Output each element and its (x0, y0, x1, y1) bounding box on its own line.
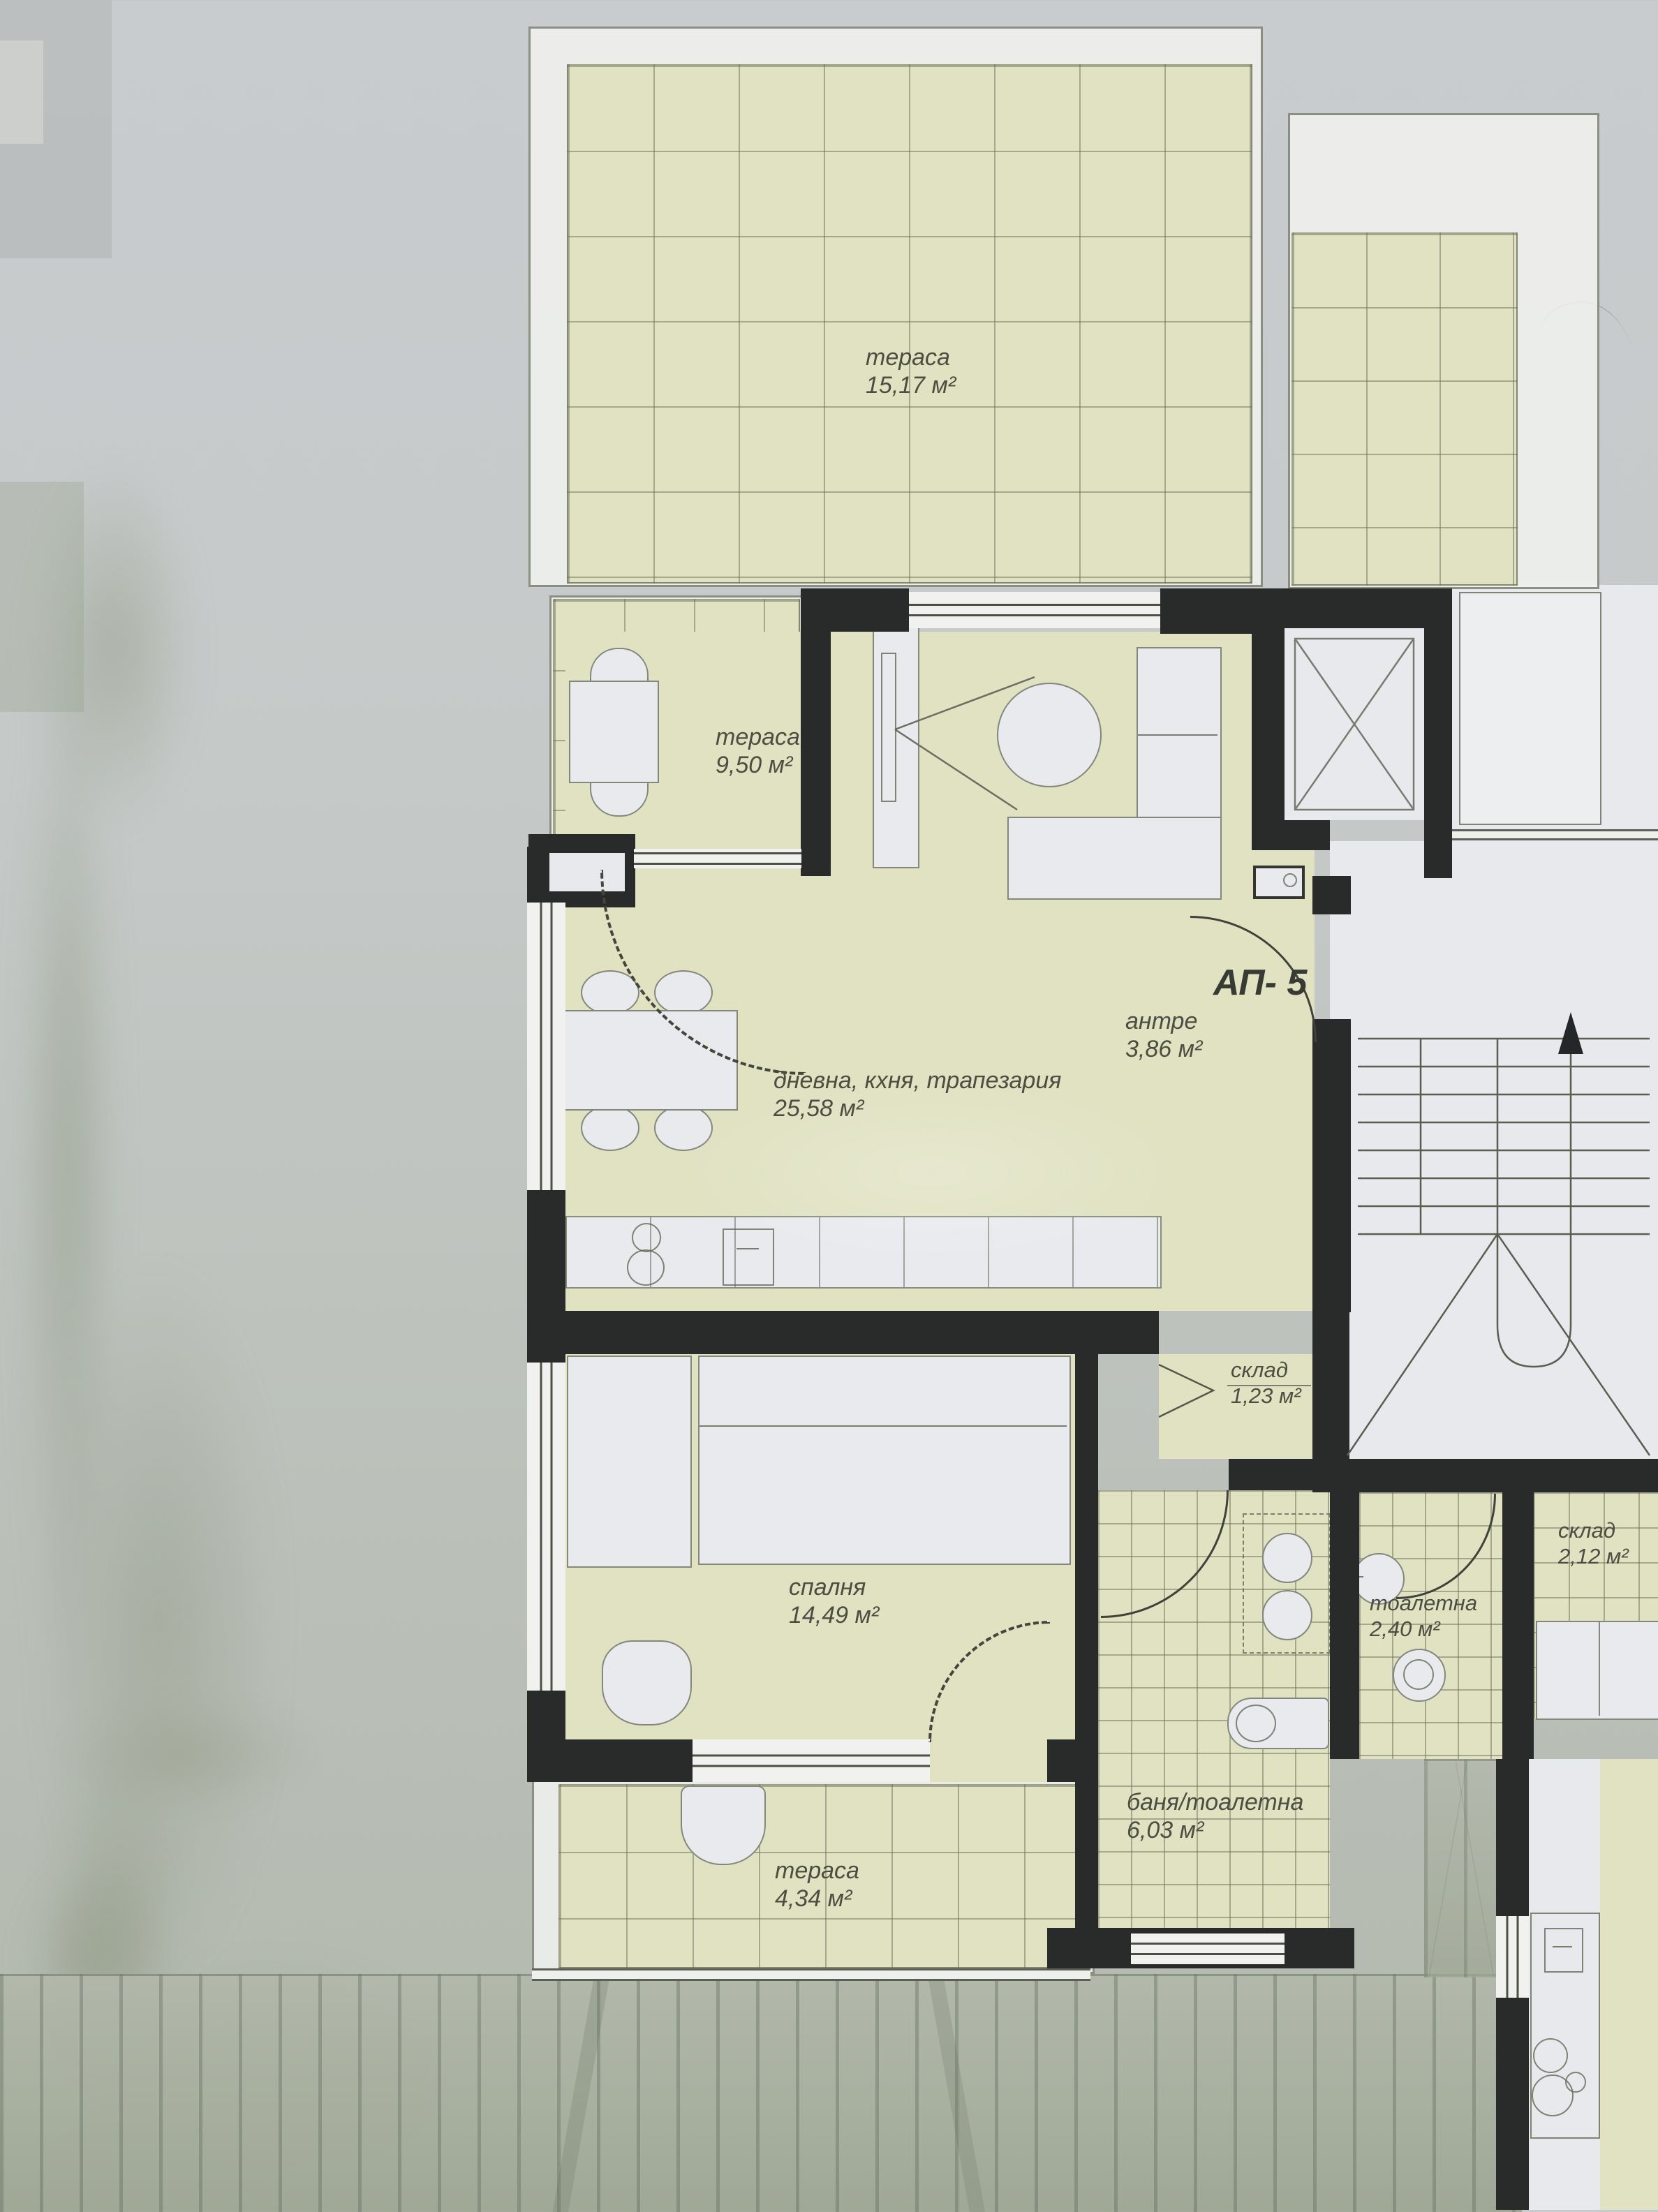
elevator-shaft (1285, 628, 1424, 820)
bed-line (700, 1425, 1067, 1427)
room-name: дневна, кхня, трапезария (774, 1067, 1061, 1094)
room-name: тераса (775, 1857, 859, 1885)
neighbor-faucet (1553, 1946, 1572, 1947)
window-bedroom-left (527, 1363, 565, 1691)
room-name: тераса (866, 343, 956, 371)
window-neighbor (1496, 1916, 1529, 1998)
armchair (602, 1640, 692, 1725)
bathroom-sink (1262, 1590, 1312, 1640)
storage-cabinets (1536, 1621, 1658, 1720)
room-label-terrace-left: тераса 9,50 м² (716, 723, 800, 779)
wall-bed-bath (1075, 1354, 1098, 1928)
room-area: 1,23 м² (1231, 1383, 1301, 1409)
room-label-living: дневна, кхня, трапезария 25,58 м² (774, 1067, 1061, 1122)
room-label-bedroom: спалня 14,49 м² (789, 1573, 879, 1629)
room-name: антре (1125, 1007, 1202, 1035)
room-name: склад (1558, 1517, 1629, 1543)
electrical-panel-knob (1283, 873, 1297, 887)
room-name: тераса (716, 723, 800, 751)
room-area: 14,49 м² (789, 1601, 879, 1629)
storage-small-divider-line (1227, 1385, 1311, 1386)
window-living-left (527, 903, 565, 1190)
shaft-duct (1459, 592, 1601, 825)
window-terrace9-living (634, 849, 801, 868)
wall-toilet-right (1502, 1459, 1534, 1759)
stairs-diagram (1330, 878, 1658, 1464)
room-area: 3,86 м² (1125, 1035, 1202, 1063)
room-label-toilet: тоалетна 2,40 м² (1370, 1590, 1477, 1642)
sofa-seam (1138, 734, 1217, 736)
storage-folding-door (1159, 1361, 1222, 1424)
room-label-storage-small: склад 1,23 м² (1231, 1357, 1301, 1409)
terrace-top-floor (567, 64, 1252, 584)
terrace-bottom-railing (532, 1968, 1090, 1981)
up-arrow-icon (1558, 1012, 1583, 1054)
room-label-bathroom: баня/тоалетна 6,03 м² (1127, 1788, 1303, 1844)
room-label-terrace-bottom: тераса 4,34 м² (775, 1857, 859, 1913)
neighbor-burner (1533, 2038, 1568, 2073)
photo-fence (0, 1974, 1522, 2212)
electrical-panel (1253, 866, 1305, 899)
toilet-seat (1236, 1705, 1276, 1742)
window-living-top (909, 592, 1160, 628)
terrace-lounge-chair (681, 1786, 766, 1865)
room-area: 2,40 м² (1370, 1616, 1477, 1642)
coffee-table-round (997, 683, 1102, 787)
photo-fence (1424, 1759, 1497, 1977)
storage-cabinet-divider (1599, 1622, 1600, 1716)
room-name: склад (1231, 1357, 1301, 1383)
wall-kitchen (527, 1311, 1159, 1354)
corridor-threshold (1452, 829, 1658, 840)
wall (1160, 588, 1257, 634)
room-area: 15,17 м² (866, 371, 956, 399)
room-name: баня/тоалетна (1127, 1788, 1303, 1816)
room-area: 25,58 м² (774, 1094, 1061, 1122)
window-bathroom (1131, 1933, 1285, 1964)
bedroom-wardrobe (567, 1356, 692, 1568)
terrace-table (569, 681, 659, 783)
window-bedroom-terrace (693, 1739, 930, 1782)
toilet-room-bowl-inner (1403, 1659, 1434, 1690)
wall (1330, 1492, 1359, 1759)
wall (1229, 1459, 1330, 1490)
neighbor-sink (1544, 1928, 1583, 1973)
room-label-antre: антре 3,86 м² (1125, 1007, 1202, 1063)
room-name: спалня (789, 1573, 879, 1601)
apartment-number-label: АП- 5 (1213, 965, 1307, 1001)
room-area: 6,03 м² (1127, 1816, 1303, 1844)
room-area: 2,12 м² (1558, 1543, 1629, 1569)
wall (801, 588, 909, 632)
neighbor-burner (1565, 2072, 1586, 2093)
wall-bedroom-bottom (1047, 1739, 1089, 1782)
room-area: 4,34 м² (775, 1885, 859, 1913)
door-opening-floor (930, 1739, 1049, 1782)
wall (1252, 820, 1330, 850)
tv-screen (881, 653, 896, 802)
neighbor-floor (1600, 1759, 1658, 2210)
wall-elevator-top (1252, 588, 1452, 628)
room-label-storage-right: склад 2,12 м² (1558, 1517, 1629, 1569)
room-name: тоалетна (1370, 1590, 1477, 1616)
bathroom-sink (1262, 1533, 1312, 1583)
wall-elevator-right (1424, 588, 1452, 878)
room-label-terrace-top: тераса 15,17 м² (866, 343, 956, 399)
bed (698, 1356, 1071, 1565)
terrace-topright-floor (1291, 232, 1518, 586)
sofa-horizontal-section (1007, 817, 1222, 900)
room-area: 9,50 м² (716, 751, 800, 779)
photo-building-window (0, 40, 43, 144)
floor-plan-page: { "plan": { "apartment_label": "АП- 5", … (0, 0, 1658, 2210)
